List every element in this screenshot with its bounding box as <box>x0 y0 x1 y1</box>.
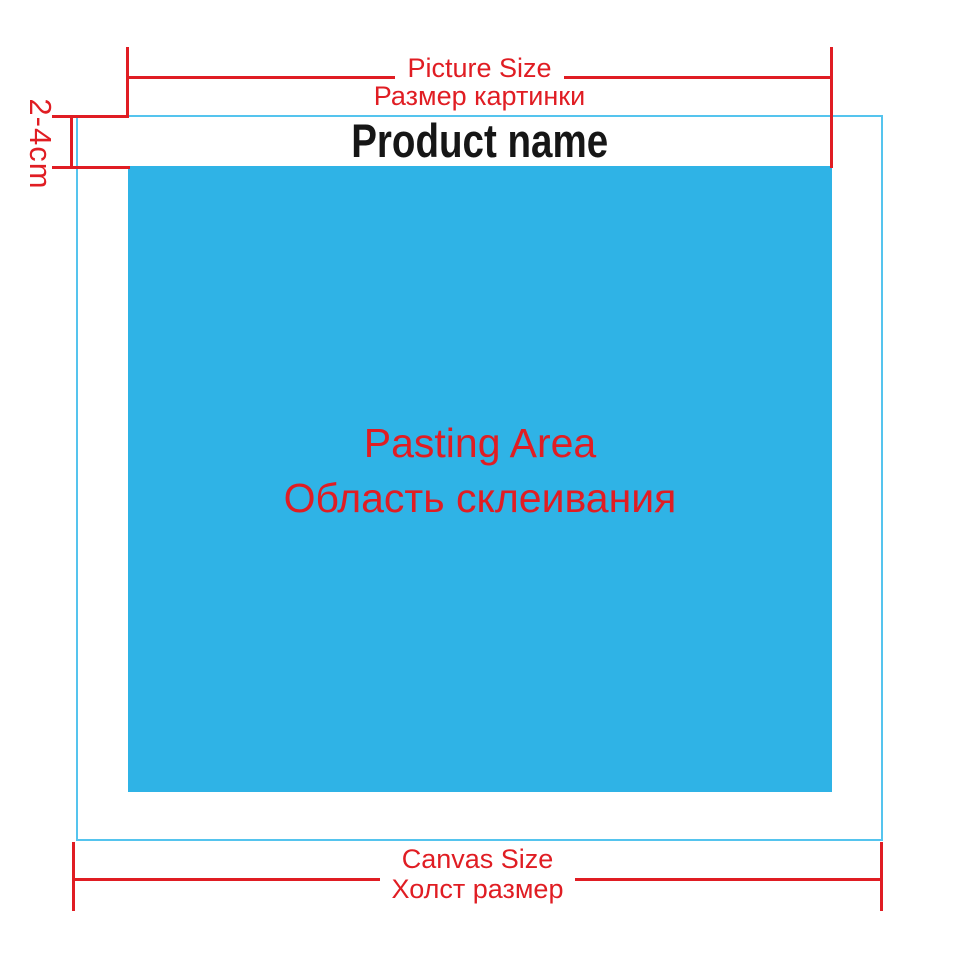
dimension-line-segment <box>564 76 833 79</box>
margin-tick-upper <box>52 115 129 118</box>
product-name-text: Product name <box>352 117 609 164</box>
picture-size-label-ru: Размер картинки <box>126 82 833 112</box>
canvas-size-label-en: Canvas Size <box>72 845 883 875</box>
dimension-line-segment <box>126 76 395 79</box>
size-diagram: Product name Pasting Area Область склеив… <box>0 0 960 960</box>
pasting-area-label-ru: Область склеивания <box>128 471 832 526</box>
canvas-size-label-ru: Холст размер <box>380 874 576 905</box>
dimension-line-segment <box>72 878 380 881</box>
dimension-line-segment <box>575 878 883 881</box>
pasting-area: Pasting Area Область склеивания <box>128 166 832 792</box>
product-name: Product name <box>128 117 832 164</box>
pasting-area-label: Pasting Area Область склеивания <box>128 416 832 527</box>
picture-size-dimension-line: Picture Size <box>126 53 833 84</box>
canvas-size-dimension-line: Холст размер <box>72 874 883 905</box>
pasting-area-label-en: Pasting Area <box>128 416 832 471</box>
margin-tick-lower <box>52 166 130 169</box>
margin-tick-vertical <box>70 115 73 169</box>
margin-label: 2-4cm <box>22 98 58 189</box>
picture-size-label-en: Picture Size <box>395 53 563 84</box>
